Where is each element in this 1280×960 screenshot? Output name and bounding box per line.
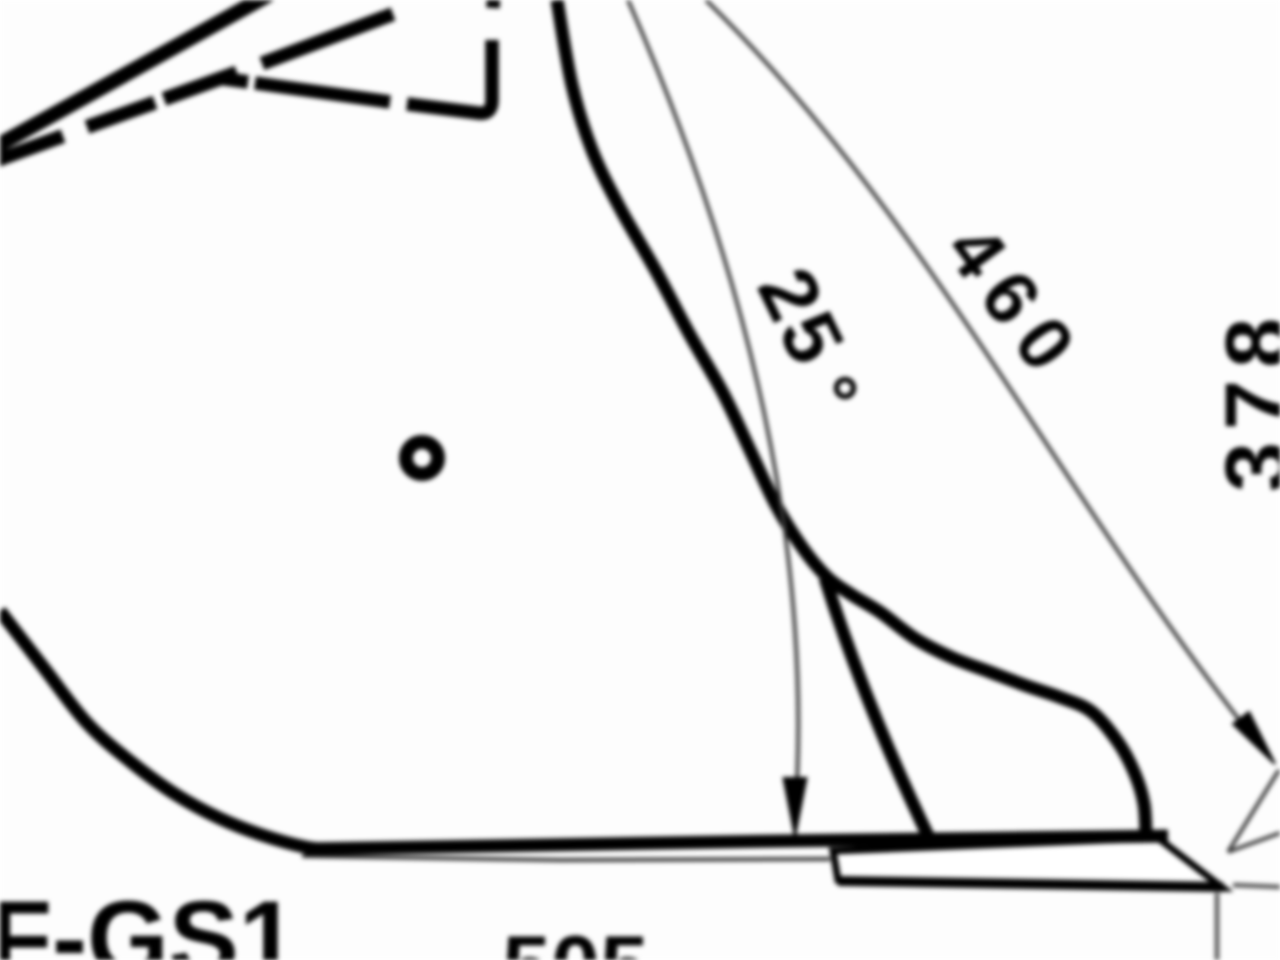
svg-text:378: 378 [1208,306,1280,492]
svg-text:505: 505 [502,917,649,960]
svg-text:F-GS1: F-GS1 [0,880,297,960]
